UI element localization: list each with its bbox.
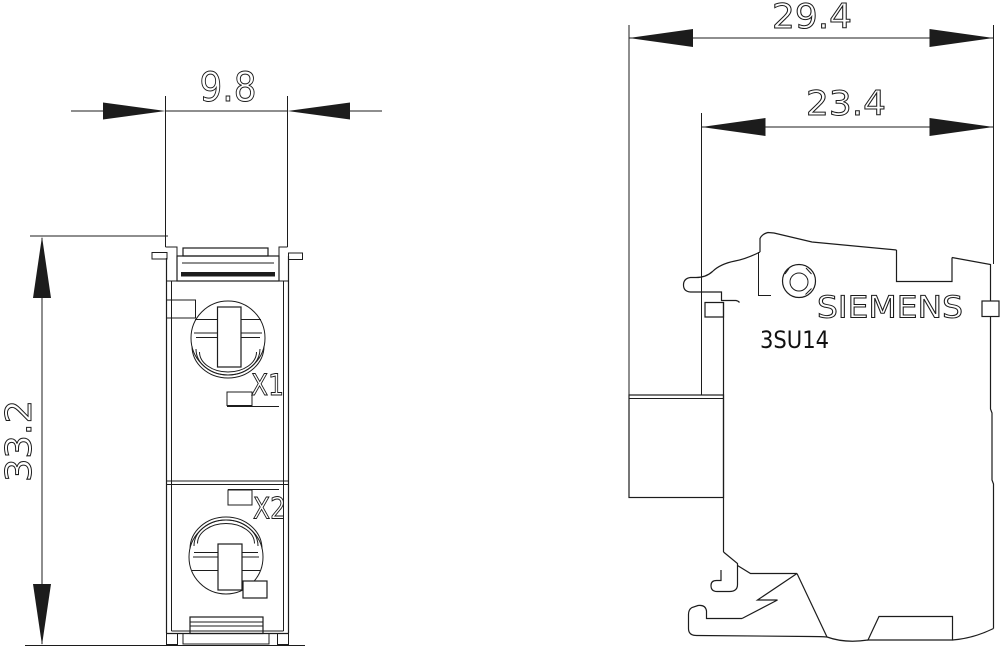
dim-label-height: 33.2	[0, 400, 40, 482]
dim-label-width: 9.8	[200, 65, 257, 111]
clip-foot-left	[167, 634, 178, 645]
din-hook	[711, 552, 738, 592]
screw-recess-arc	[198, 524, 255, 544]
model-marking: 3SU14	[760, 326, 829, 354]
terminal-label-x2: X2	[253, 492, 286, 526]
side-body: SIEMENS 3SU14	[629, 233, 999, 642]
clip-foot-center	[183, 634, 269, 645]
body-top-edge	[760, 233, 897, 253]
terminal-marker	[227, 392, 252, 406]
latch-inner-line	[759, 252, 772, 296]
clip-foot-right	[278, 634, 289, 645]
din-clip-top	[738, 566, 798, 574]
arrowhead-icon	[33, 584, 51, 645]
terminal-label-x1: X1	[251, 368, 284, 402]
arrowhead-icon	[930, 118, 994, 136]
brand-marking: SIEMENS	[817, 291, 963, 326]
din-clip-diagonal	[797, 574, 827, 638]
top-notch	[897, 250, 953, 282]
side-tab	[982, 301, 999, 317]
dimension-inner-depth: 23.4	[702, 84, 994, 395]
clip-dark-band	[181, 272, 275, 277]
arrowhead-icon	[930, 29, 994, 47]
terminal-screw-x1: X1	[191, 301, 284, 407]
front-top-clip	[152, 247, 303, 281]
dim-label-inner-depth: 23.4	[806, 84, 886, 124]
arrowhead-icon	[33, 237, 51, 299]
side-view: 29.4 23.4	[629, 0, 999, 641]
fixing-screw-outer	[783, 265, 816, 298]
body-bottom-curve-mid	[827, 637, 868, 641]
arrowhead-icon	[288, 103, 351, 120]
dim-label-overall-depth: 29.4	[772, 0, 852, 37]
front-view: 9.8 33.2	[0, 65, 382, 646]
clip-tab-right	[289, 253, 303, 260]
dimension-drawing: 9.8 33.2	[0, 0, 1000, 648]
clip-step-right	[279, 247, 288, 256]
arrowhead-icon	[103, 103, 166, 120]
drawing-canvas: 9.8 33.2	[0, 0, 1000, 648]
arrowhead-icon	[702, 118, 766, 136]
body-bottom-curve-right	[953, 629, 994, 641]
clip-tab-left	[152, 253, 167, 260]
rear-latch-beak	[684, 252, 761, 303]
screw-slot	[218, 307, 242, 367]
rear-terminal-block	[629, 395, 724, 498]
screw-slot	[218, 544, 242, 590]
latch-foot-block	[705, 303, 724, 318]
clip-body	[177, 256, 279, 281]
din-clip-fold	[742, 574, 797, 619]
dimension-width: 9.8	[71, 65, 382, 247]
terminal-screw-x2: X2	[189, 490, 286, 599]
side-notch	[167, 300, 196, 318]
arrowhead-icon	[629, 29, 693, 47]
terminal-block	[243, 581, 267, 598]
terminal-marker	[228, 490, 252, 505]
clip-top-bar	[183, 248, 268, 256]
din-foot-right	[868, 617, 953, 641]
